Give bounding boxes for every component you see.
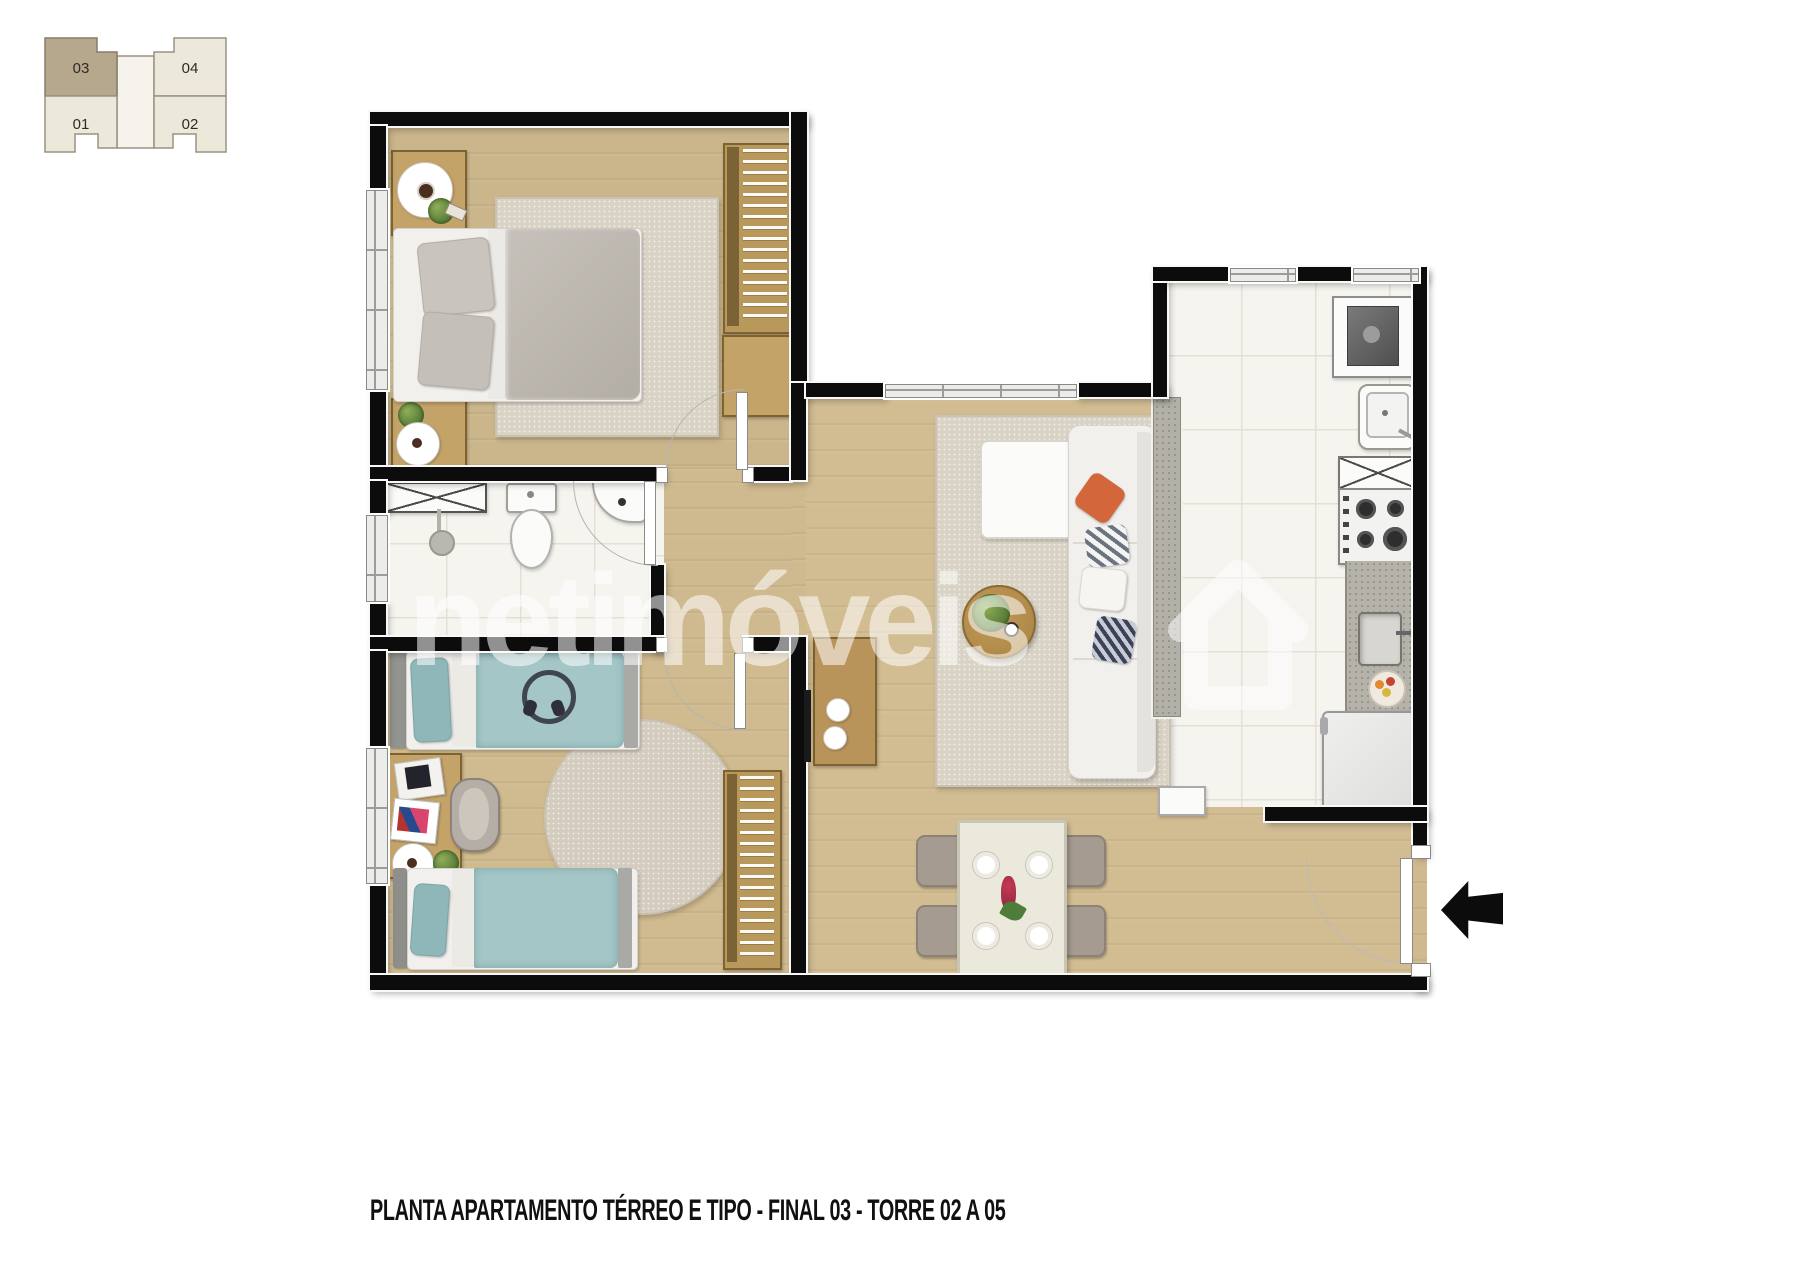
wardrobe bbox=[723, 143, 795, 334]
plate bbox=[1025, 922, 1053, 950]
fruit bbox=[1386, 677, 1395, 686]
wall bbox=[806, 383, 885, 397]
key-plan-unit-01-label: 01 bbox=[73, 116, 90, 133]
bedroom1-door-threshold bbox=[664, 467, 745, 481]
kitchen-cabinet bbox=[1338, 456, 1418, 490]
sofa-pillow-zigzag bbox=[1083, 523, 1130, 568]
laundry-tank-sink bbox=[1358, 384, 1417, 450]
door-jamb bbox=[1411, 963, 1431, 977]
wall bbox=[1413, 267, 1427, 855]
wall bbox=[370, 126, 386, 190]
side-cabinet bbox=[1158, 786, 1206, 816]
bed-pillow bbox=[416, 236, 495, 317]
kitchen-counter bbox=[1345, 561, 1415, 713]
washer-door-circle bbox=[1363, 326, 1380, 343]
kitchen-faucet bbox=[1396, 631, 1412, 635]
wardrobe-doors bbox=[727, 147, 739, 326]
stove-burner bbox=[1356, 499, 1376, 519]
shower-pipe bbox=[437, 509, 441, 531]
single-bed-headboard bbox=[393, 868, 407, 968]
washing-machine bbox=[1332, 296, 1416, 378]
stove-burner bbox=[1383, 527, 1407, 551]
fridge-handle bbox=[1320, 717, 1328, 735]
kitchen-window bbox=[1230, 268, 1296, 282]
sofa-pillow-white bbox=[1078, 566, 1128, 613]
key-plan-unit-02-label: 02 bbox=[182, 116, 199, 133]
wall bbox=[791, 112, 807, 397]
bed-blanket-teal bbox=[474, 868, 618, 968]
wardrobe bbox=[723, 770, 782, 970]
single-bed-headboard bbox=[390, 651, 406, 748]
bedroom2-window bbox=[366, 748, 388, 884]
door-jamb bbox=[1411, 845, 1431, 859]
tv-icon bbox=[804, 690, 811, 762]
wardrobe-hangers bbox=[743, 149, 787, 324]
sofa-pillow-navy bbox=[1090, 615, 1137, 665]
entry-door-threshold bbox=[1413, 855, 1427, 965]
key-plan-core bbox=[117, 56, 154, 148]
decor-disc bbox=[826, 698, 850, 722]
decor-disc bbox=[823, 726, 847, 750]
bed-blanket bbox=[505, 228, 640, 400]
bathroom-window bbox=[366, 515, 388, 602]
wardrobe-hangers bbox=[740, 776, 774, 960]
ottoman bbox=[980, 440, 1076, 539]
stove-burner bbox=[1387, 500, 1404, 517]
record-center bbox=[417, 182, 435, 200]
wall bbox=[370, 975, 1427, 990]
kitchen-window bbox=[1353, 268, 1419, 282]
refrigerator bbox=[1322, 711, 1417, 811]
entrance-arrow-icon bbox=[1441, 877, 1503, 943]
wall bbox=[370, 651, 386, 748]
fruit-bowl bbox=[1368, 670, 1406, 708]
wall bbox=[370, 467, 664, 481]
floor-plan-page: 03 04 01 02 bbox=[0, 0, 1800, 1273]
dresser bbox=[722, 335, 794, 417]
kitchen-sink bbox=[1358, 612, 1402, 666]
wall bbox=[1265, 807, 1427, 821]
plan-caption: PLANTA APARTAMENTO TÉRREO E TIPO - FINAL… bbox=[370, 1194, 1005, 1228]
bedroom1-window bbox=[366, 190, 388, 390]
fruit bbox=[1382, 688, 1391, 697]
wardrobe-doors bbox=[727, 774, 737, 962]
bed-pillow-teal bbox=[410, 883, 451, 957]
plate bbox=[972, 851, 1000, 879]
wall bbox=[791, 383, 806, 480]
living-room-window bbox=[885, 384, 1077, 398]
bedroom1-door-leaf bbox=[736, 392, 748, 470]
desk-chair bbox=[450, 778, 500, 852]
wall bbox=[370, 112, 807, 126]
entry-door-leaf bbox=[1400, 858, 1413, 964]
key-plan-unit-03-label: 03 bbox=[73, 60, 90, 77]
bed-sheet bbox=[452, 869, 476, 967]
bed-pillow bbox=[417, 311, 495, 391]
wall bbox=[370, 388, 386, 467]
plate bbox=[1025, 851, 1053, 879]
toilet-button bbox=[527, 491, 534, 498]
decor-disc-center bbox=[412, 438, 422, 448]
poster-art bbox=[405, 764, 432, 789]
bed-footboard bbox=[618, 868, 632, 968]
fruit bbox=[1375, 680, 1384, 689]
key-plan-unit-04-label: 04 bbox=[182, 60, 199, 77]
stove bbox=[1338, 488, 1418, 565]
stove-knobs bbox=[1343, 496, 1349, 556]
watermark-house-icon bbox=[1168, 548, 1308, 718]
wall bbox=[1153, 267, 1167, 397]
watermark: netimóveis bbox=[408, 545, 1027, 695]
key-plan-diagram: 03 04 01 02 bbox=[35, 30, 245, 165]
poster-art bbox=[397, 806, 429, 833]
wall bbox=[370, 481, 386, 515]
wall bbox=[370, 882, 386, 975]
sink-drain bbox=[618, 498, 626, 506]
stove-burner bbox=[1357, 531, 1374, 548]
plate bbox=[972, 922, 1000, 950]
tank-drain bbox=[1382, 410, 1388, 416]
chair-seat bbox=[459, 788, 489, 840]
door-jamb bbox=[656, 467, 668, 483]
vinyl-center bbox=[407, 858, 417, 868]
